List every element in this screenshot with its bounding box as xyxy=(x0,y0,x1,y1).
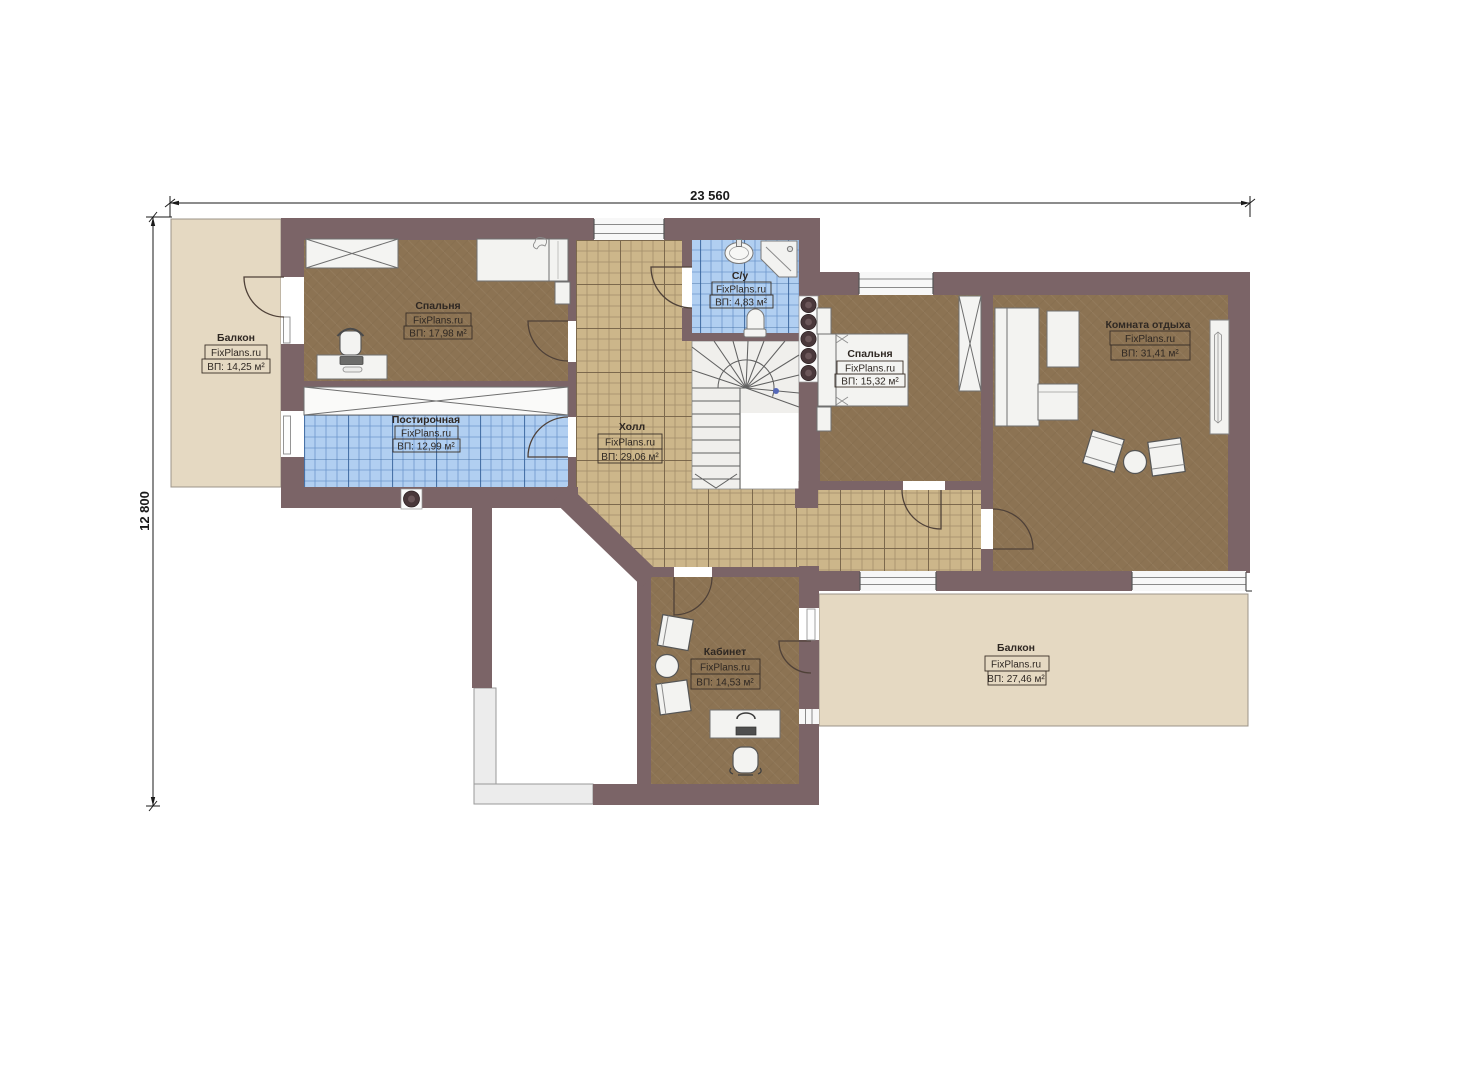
svg-text:ВП: 12,99 м²: ВП: 12,99 м² xyxy=(397,442,455,453)
svg-text:ВП: 31,41 м²: ВП: 31,41 м² xyxy=(1121,349,1179,360)
svg-text:12 800: 12 800 xyxy=(137,491,152,531)
svg-text:Спальня: Спальня xyxy=(415,300,460,312)
svg-text:ВП: 15,32 м²: ВП: 15,32 м² xyxy=(841,377,899,388)
svg-text:FixPlans.ru: FixPlans.ru xyxy=(1125,334,1175,345)
svg-text:ВП: 14,25 м²: ВП: 14,25 м² xyxy=(207,362,265,373)
svg-text:ВП: 29,06 м²: ВП: 29,06 м² xyxy=(601,452,659,463)
svg-text:FixPlans.ru: FixPlans.ru xyxy=(413,316,463,327)
svg-text:ВП: 17,98 м²: ВП: 17,98 м² xyxy=(409,329,467,340)
svg-text:С/у: С/у xyxy=(732,270,749,282)
svg-text:Постирочная: Постирочная xyxy=(392,414,460,426)
svg-text:Спальня: Спальня xyxy=(847,348,892,360)
svg-text:23 560: 23 560 xyxy=(690,188,730,203)
svg-text:Комната отдыха: Комната отдыха xyxy=(1106,319,1191,331)
svg-text:Балкон: Балкон xyxy=(997,642,1035,654)
svg-text:Балкон: Балкон xyxy=(217,332,255,344)
svg-text:FixPlans.ru: FixPlans.ru xyxy=(401,429,451,440)
svg-text:ВП: 27,46 м²: ВП: 27,46 м² xyxy=(987,674,1045,685)
svg-text:ВП: 14,53 м²: ВП: 14,53 м² xyxy=(696,678,754,689)
svg-text:Холл: Холл xyxy=(619,421,645,433)
svg-text:ВП: 4,83 м²: ВП: 4,83 м² xyxy=(715,298,768,309)
svg-text:FixPlans.ru: FixPlans.ru xyxy=(845,364,895,375)
svg-text:FixPlans.ru: FixPlans.ru xyxy=(700,663,750,674)
svg-text:FixPlans.ru: FixPlans.ru xyxy=(716,285,766,296)
svg-text:Кабинет: Кабинет xyxy=(704,646,747,658)
svg-text:FixPlans.ru: FixPlans.ru xyxy=(211,348,261,359)
svg-text:FixPlans.ru: FixPlans.ru xyxy=(605,438,655,449)
svg-text:FixPlans.ru: FixPlans.ru xyxy=(991,660,1041,671)
